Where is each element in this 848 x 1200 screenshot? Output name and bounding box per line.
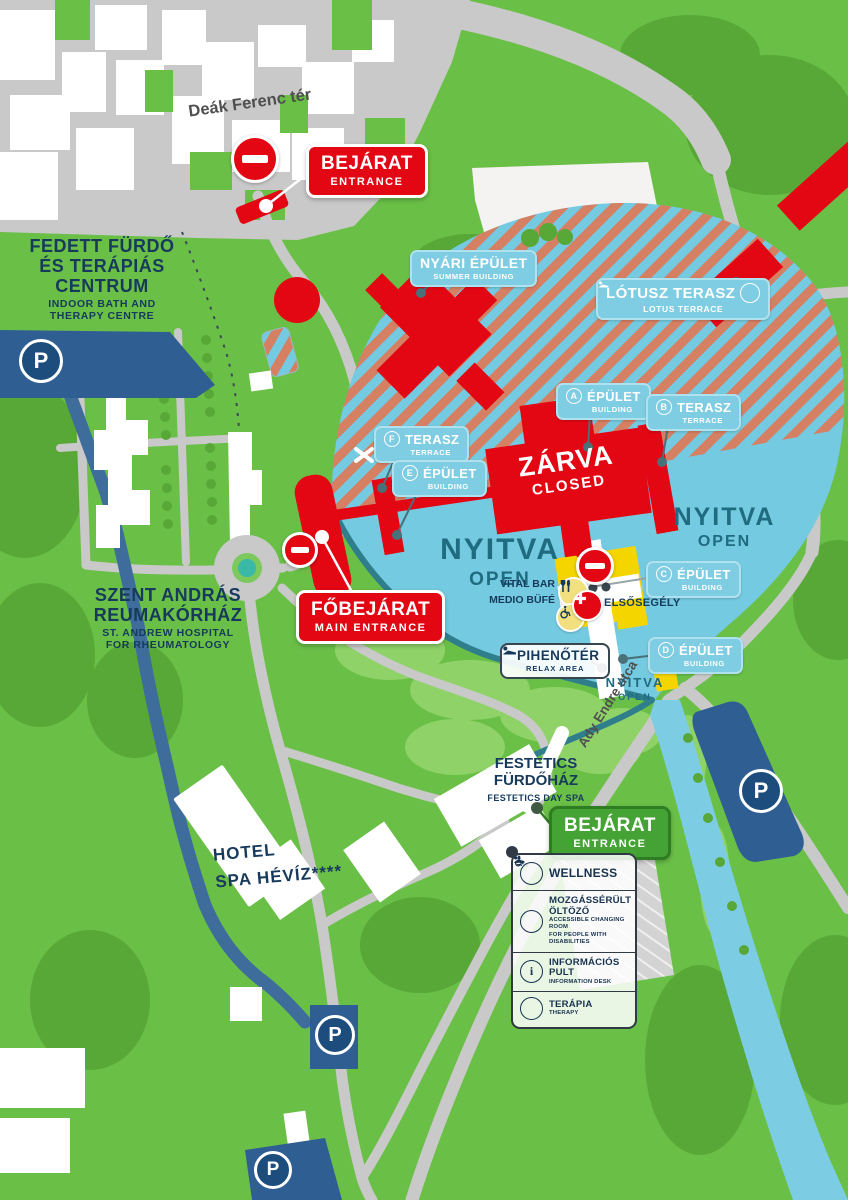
building-c-badge: CÉPÜLET BUILDING: [646, 561, 741, 598]
status-open-en: OPEN: [598, 692, 672, 702]
badge-title: TERASZ: [405, 432, 459, 447]
badge-title: ÉPÜLET: [679, 643, 733, 658]
status-open: NYITVA: [598, 676, 672, 691]
hospital-label: SZENT ANDRÁS REUMAKÓRHÁZ ST. ANDREW HOSP…: [28, 585, 308, 652]
first-aid-icon: [572, 590, 603, 621]
legend-title: INFORMÁCIÓS PULT: [549, 958, 628, 979]
label-sub: THERAPY CENTRE: [8, 311, 196, 323]
building-letter: E: [402, 465, 418, 481]
entrance-title: BEJÁRAT: [564, 815, 656, 837]
badge-title: LÓTUSZ TERASZ: [606, 285, 735, 302]
label-line: VITAL BAR: [483, 577, 555, 593]
label-line: FEDETT FÜRDŐ: [8, 236, 196, 256]
relax-area-badge: PIHENŐTÉR RELAX AREA: [500, 643, 610, 679]
wheelchair-icon: [520, 910, 543, 933]
label-line: FESTETICS: [470, 756, 602, 773]
entrance-badge-festetics: BEJÁRAT ENTRANCE: [549, 806, 671, 860]
badge-title: TERASZ: [677, 400, 731, 415]
label-line: FÜRDŐHÁZ: [470, 773, 602, 790]
badge-title: ÉPÜLET: [587, 389, 641, 404]
badge-subtitle: BUILDING: [584, 405, 641, 414]
summer-building-badge: NYÁRI ÉPÜLET SUMMER BUILDING: [410, 250, 537, 287]
legend-row-info: i INFORMÁCIÓS PULT INFORMATION DESK: [513, 952, 635, 991]
badge-subtitle: LOTUS TERRACE: [606, 304, 760, 314]
info-icon: i: [520, 960, 543, 983]
status-open: NYITVA: [420, 533, 580, 567]
badge-subtitle: BUILDING: [420, 482, 477, 491]
red-plaza-circle: [274, 277, 320, 323]
building-d-badge: DÉPÜLET BUILDING: [648, 637, 743, 674]
badge-subtitle: BUILDING: [676, 659, 733, 668]
lotus-terrace-badge: LÓTUSZ TERASZ LOTUS TERRACE: [596, 278, 770, 320]
legend-sub: FOR PEOPLE WITH DISABILITIES: [549, 932, 631, 947]
legend-box: WELLNESS MOZGÁSSÉRÜLT ÖLTÖZŐ ACCESSIBLE …: [511, 853, 637, 1029]
no-entry-sign-main: [282, 532, 318, 568]
legend-title: WELLNESS: [549, 867, 617, 880]
legend-row-accessible: MOZGÁSSÉRÜLT ÖLTÖZŐ ACCESSIBLE CHANGING …: [513, 890, 635, 952]
indoor-bath-label: FEDETT FÜRDŐ ÉS TERÁPIÁS CENTRUM INDOOR …: [8, 236, 196, 323]
therapy-icon: [520, 997, 543, 1020]
building-letter: B: [656, 399, 672, 415]
building-letter: C: [656, 566, 672, 582]
label-sub: FESTETICS DAY SPA: [470, 793, 602, 803]
badge-subtitle: BUILDING: [674, 583, 731, 592]
parking-letter: P: [34, 348, 49, 374]
parking-icon-south: P: [315, 1015, 355, 1055]
first-aid-label: ELSŐSEGÉLY: [604, 597, 681, 609]
building-letter: F: [384, 431, 400, 447]
entrance-badge-main: FŐBEJÁRAT MAIN ENTRANCE: [296, 590, 445, 644]
festetics-label: FESTETICS FÜRDŐHÁZ FESTETICS DAY SPA: [470, 756, 602, 803]
badge-subtitle: TERRACE: [674, 416, 731, 425]
heviz-spa-map: P P P P Deák Ferenc tér Ady Endre utca B…: [0, 0, 848, 1200]
status-open: NYITVA: [652, 503, 797, 531]
parking-letter: P: [328, 1024, 341, 1047]
badge-title: ÉPÜLET: [677, 567, 731, 582]
entrance-subtitle: ENTRANCE: [321, 176, 413, 188]
entrance-subtitle: ENTRANCE: [564, 838, 656, 850]
label-line: REUMAKÓRHÁZ: [28, 605, 308, 625]
label-line: MEDIO BÜFÉ: [483, 593, 555, 609]
label-line: CENTRUM: [8, 276, 196, 296]
terrace-b-badge: BTERASZ TERRACE: [646, 394, 741, 431]
info-letter: i: [530, 964, 533, 979]
legend-sub: INFORMATION DESK: [549, 979, 628, 986]
parking-icon-northwest: P: [19, 339, 63, 383]
building-letter: D: [658, 642, 674, 658]
badge-title: ÉPÜLET: [423, 466, 477, 481]
legend-row-wellness: WELLNESS: [513, 857, 635, 890]
terrace-f-badge: FTERASZ TERRACE: [374, 426, 469, 463]
parking-icon-southwest: P: [254, 1151, 292, 1189]
badge-subtitle: SUMMER BUILDING: [420, 272, 527, 281]
parking-letter: P: [754, 778, 769, 804]
entrance-title: BEJÁRAT: [321, 153, 413, 175]
open-status-south: NYITVA OPEN: [598, 676, 672, 702]
building-letter: A: [566, 388, 582, 404]
badge-subtitle: TERRACE: [402, 448, 459, 457]
no-entry-sign-north: [231, 135, 279, 183]
building-e-badge: EÉPÜLET BUILDING: [392, 460, 487, 497]
vital-bar-label: VITAL BAR MEDIO BÜFÉ: [483, 577, 555, 609]
badge-subtitle: RELAX AREA: [511, 664, 599, 673]
legend-title: MOZGÁSSÉRÜLT ÖLTÖZŐ: [549, 896, 631, 917]
label-line: ÉS TERÁPIÁS: [8, 256, 196, 276]
legend-sub: THERAPY: [549, 1010, 593, 1017]
entrance-title: FŐBEJÁRAT: [311, 599, 430, 621]
legend-sub: ACCESSIBLE CHANGING ROOM: [549, 917, 631, 932]
badge-title: NYÁRI ÉPÜLET: [420, 255, 527, 271]
parking-icon-east: P: [739, 769, 783, 813]
wellness-icon: [740, 283, 760, 303]
status-open-en: OPEN: [652, 533, 797, 551]
badge-title: PIHENŐTÉR: [517, 648, 599, 663]
label-line: SZENT ANDRÁS: [28, 585, 308, 605]
entrance-badge-north: BEJÁRAT ENTRANCE: [306, 144, 428, 198]
legend-row-therapy: TERÁPIA THERAPY: [513, 991, 635, 1025]
building-a-badge: AÉPÜLET BUILDING: [556, 383, 651, 420]
parking-letter: P: [267, 1159, 280, 1181]
label-sub: FOR RHEUMATOLOGY: [28, 640, 308, 652]
legend-title: TERÁPIA: [549, 1000, 593, 1011]
entrance-subtitle: MAIN ENTRANCE: [311, 622, 430, 634]
open-status-east: NYITVA OPEN: [652, 503, 797, 551]
